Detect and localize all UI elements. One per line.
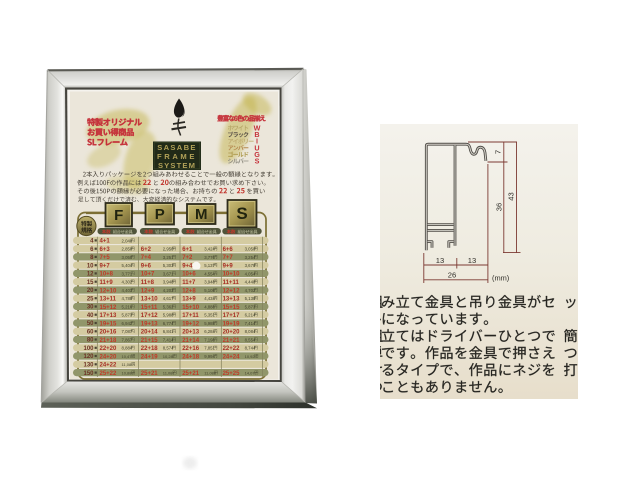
svg-text:22+20: 22+20	[100, 346, 118, 352]
svg-text:25+21: 25+21	[141, 371, 159, 377]
svg-text:19+12: 19+12	[182, 321, 200, 327]
svg-text:15+12: 15+12	[100, 305, 118, 311]
svg-text:4+1: 4+1	[100, 239, 111, 245]
svg-text:17+13: 17+13	[100, 313, 118, 319]
svg-text:11,080: 11,080	[122, 362, 135, 367]
svg-text:36: 36	[495, 203, 504, 211]
svg-text:50: 50	[87, 321, 94, 327]
svg-text:10: 10	[87, 263, 94, 269]
svg-text:10+8: 10+8	[100, 272, 114, 278]
svg-text:F: F	[114, 207, 123, 224]
svg-text:20+14: 20+14	[141, 330, 159, 336]
svg-text:SASABE: SASABE	[157, 143, 196, 152]
svg-text:25+22: 25+22	[100, 371, 118, 377]
svg-text:15+11: 15+11	[141, 305, 158, 311]
svg-text:24+24: 24+24	[223, 354, 241, 360]
svg-text:15: 15	[87, 280, 94, 286]
svg-text:13: 13	[468, 256, 476, 265]
svg-text:21+21: 21+21	[223, 338, 241, 344]
svg-text:10,281: 10,281	[163, 354, 176, 359]
svg-text:9+7: 9+7	[100, 264, 111, 270]
svg-text:20+20: 20+20	[223, 330, 241, 336]
svg-text:19+15: 19+15	[100, 321, 118, 327]
svg-text:13+13: 13+13	[223, 297, 241, 303]
svg-text:9+6: 9+6	[141, 264, 152, 270]
svg-text:11+11: 11+11	[223, 280, 240, 286]
svg-text:19+13: 19+13	[141, 321, 159, 327]
svg-text:17+17: 17+17	[223, 313, 241, 319]
svg-text:6+1: 6+1	[182, 247, 193, 253]
svg-text:20+13: 20+13	[182, 330, 200, 336]
svg-text:19+19: 19+19	[223, 321, 241, 327]
svg-text:25: 25	[87, 296, 94, 302]
svg-text:6+2: 6+2	[141, 247, 152, 253]
svg-text:40: 40	[87, 313, 94, 319]
svg-text:9+9: 9+9	[223, 264, 234, 270]
svg-text:12+8: 12+8	[182, 288, 196, 294]
svg-text:60: 60	[87, 330, 94, 336]
svg-text:10,888: 10,888	[122, 371, 135, 376]
svg-text:11,081: 11,081	[163, 371, 176, 376]
svg-text:12: 12	[87, 272, 94, 278]
svg-text:11+9: 11+9	[100, 280, 114, 286]
svg-text:100: 100	[83, 346, 94, 352]
svg-text:20+16: 20+16	[100, 330, 118, 336]
svg-text:11,088: 11,088	[204, 371, 217, 376]
svg-text:150: 150	[83, 371, 94, 377]
svg-text:11+7: 11+7	[182, 280, 196, 286]
svg-text:130: 130	[83, 363, 94, 369]
svg-text:13+10: 13+10	[141, 297, 159, 303]
svg-text:80: 80	[87, 338, 94, 344]
svg-text:25+25: 25+25	[223, 371, 241, 377]
svg-text:17+12: 17+12	[141, 313, 159, 319]
svg-text:21+14: 21+14	[182, 338, 200, 344]
svg-text:11+8: 11+8	[141, 280, 155, 286]
svg-text:13+11: 13+11	[100, 297, 117, 303]
svg-text:10+7: 10+7	[141, 272, 155, 278]
svg-text:10+10: 10+10	[223, 272, 241, 278]
svg-text:7+2: 7+2	[182, 255, 193, 261]
svg-text:24+20: 24+20	[100, 354, 118, 360]
svg-text:7+7: 7+7	[223, 255, 234, 261]
svg-text:20: 20	[87, 288, 94, 294]
svg-text:13+9: 13+9	[182, 297, 196, 303]
svg-text:6+3: 6+3	[100, 247, 111, 253]
svg-text:9+4: 9+4	[182, 264, 193, 270]
svg-text:24+22: 24+22	[100, 363, 118, 369]
svg-text:(mm): (mm)	[492, 274, 509, 283]
svg-text:SYSTEM: SYSTEM	[158, 161, 196, 170]
svg-text:M: M	[195, 206, 208, 223]
svg-text:13: 13	[436, 256, 444, 265]
svg-text:S: S	[236, 204, 247, 223]
svg-text:120: 120	[83, 354, 94, 360]
svg-text:21+18: 21+18	[100, 338, 118, 344]
svg-text:22+22: 22+22	[223, 346, 241, 352]
svg-text:22+18: 22+18	[141, 346, 159, 352]
svg-text:21+15: 21+15	[141, 338, 159, 344]
svg-text:10,478: 10,478	[122, 354, 135, 359]
svg-text:10+6: 10+6	[182, 272, 196, 278]
svg-text:12+10: 12+10	[100, 288, 118, 294]
svg-text:10,924: 10,924	[245, 354, 258, 359]
svg-text:15+10: 15+10	[182, 305, 200, 311]
svg-text:30: 30	[87, 305, 94, 311]
svg-text:S: S	[255, 157, 260, 166]
svg-text:22+16: 22+16	[182, 346, 200, 352]
svg-text:24+19: 24+19	[141, 354, 159, 360]
svg-text:12+12: 12+12	[223, 288, 241, 294]
svg-text:P: P	[155, 206, 165, 223]
svg-text:7+5: 7+5	[100, 255, 111, 261]
svg-text:6+6: 6+6	[223, 247, 234, 253]
svg-text:24+18: 24+18	[182, 354, 200, 360]
svg-text:26: 26	[448, 271, 456, 280]
svg-text:15+15: 15+15	[223, 305, 241, 311]
svg-text:7+4: 7+4	[141, 255, 152, 261]
svg-text:43: 43	[507, 192, 516, 200]
svg-text:FRAME: FRAME	[157, 152, 197, 161]
svg-text:12+9: 12+9	[141, 288, 155, 294]
svg-text:14,072: 14,072	[245, 371, 258, 376]
svg-text:25+21: 25+21	[182, 371, 200, 377]
svg-text:7: 7	[493, 150, 502, 154]
svg-text:17+11: 17+11	[182, 313, 199, 319]
